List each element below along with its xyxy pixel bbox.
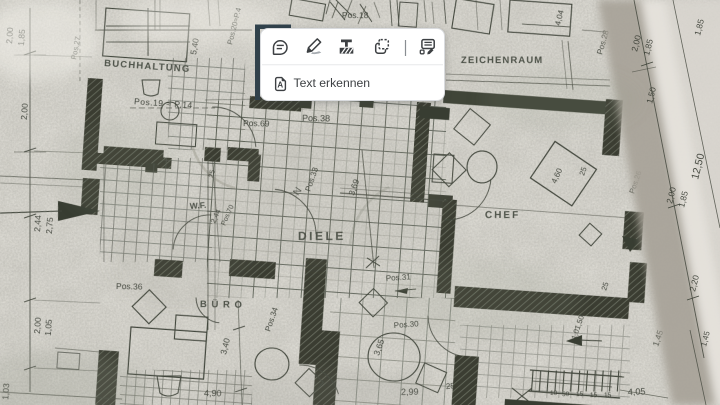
svg-text:50: 50 <box>562 391 570 398</box>
svg-text:ZEICHENRAUM: ZEICHENRAUM <box>461 55 543 66</box>
svg-text:15: 15 <box>604 392 612 399</box>
svg-text:2,00: 2,00 <box>32 317 43 334</box>
svg-text:10: 10 <box>550 390 558 397</box>
svg-text:Text erkennen: Text erkennen <box>293 76 370 90</box>
svg-text:A: A <box>277 80 283 89</box>
svg-text:15: 15 <box>576 391 584 398</box>
svg-text:2,44: 2,44 <box>32 215 43 232</box>
svg-text:2,75: 2,75 <box>44 217 55 234</box>
svg-text:Pos.38: Pos.38 <box>302 113 330 123</box>
svg-text:W.F.: W.F. <box>189 200 206 211</box>
svg-text:15: 15 <box>590 392 598 399</box>
svg-text:CHEF: CHEF <box>485 210 520 221</box>
svg-text:1,05: 1,05 <box>43 319 54 336</box>
svg-text:2,00: 2,00 <box>19 103 30 120</box>
